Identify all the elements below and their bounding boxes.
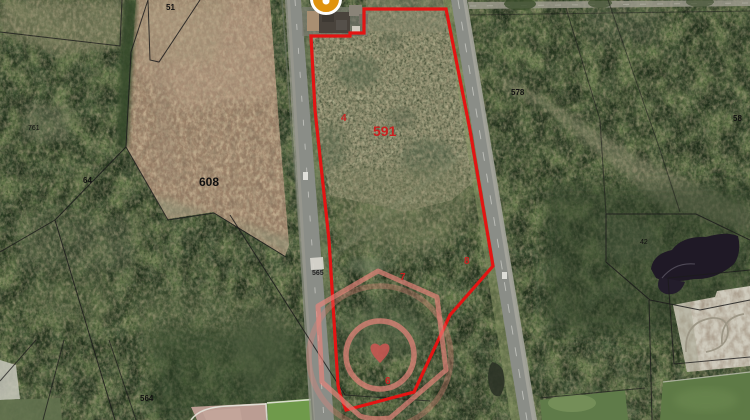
svg-text:565: 565 bbox=[312, 270, 324, 277]
svg-text:51: 51 bbox=[166, 3, 175, 12]
svg-text:608: 608 bbox=[199, 175, 219, 189]
svg-text:578: 578 bbox=[511, 88, 525, 97]
svg-text:591: 591 bbox=[373, 123, 397, 139]
svg-text:8: 8 bbox=[464, 256, 470, 267]
svg-text:58: 58 bbox=[733, 114, 742, 123]
svg-text:64: 64 bbox=[83, 176, 92, 185]
svg-text:42: 42 bbox=[640, 239, 648, 246]
svg-text:7: 7 bbox=[400, 272, 406, 283]
svg-text:564: 564 bbox=[140, 394, 154, 403]
svg-text:4: 4 bbox=[341, 113, 347, 124]
svg-text:6: 6 bbox=[385, 376, 391, 387]
svg-text:761: 761 bbox=[28, 125, 40, 132]
